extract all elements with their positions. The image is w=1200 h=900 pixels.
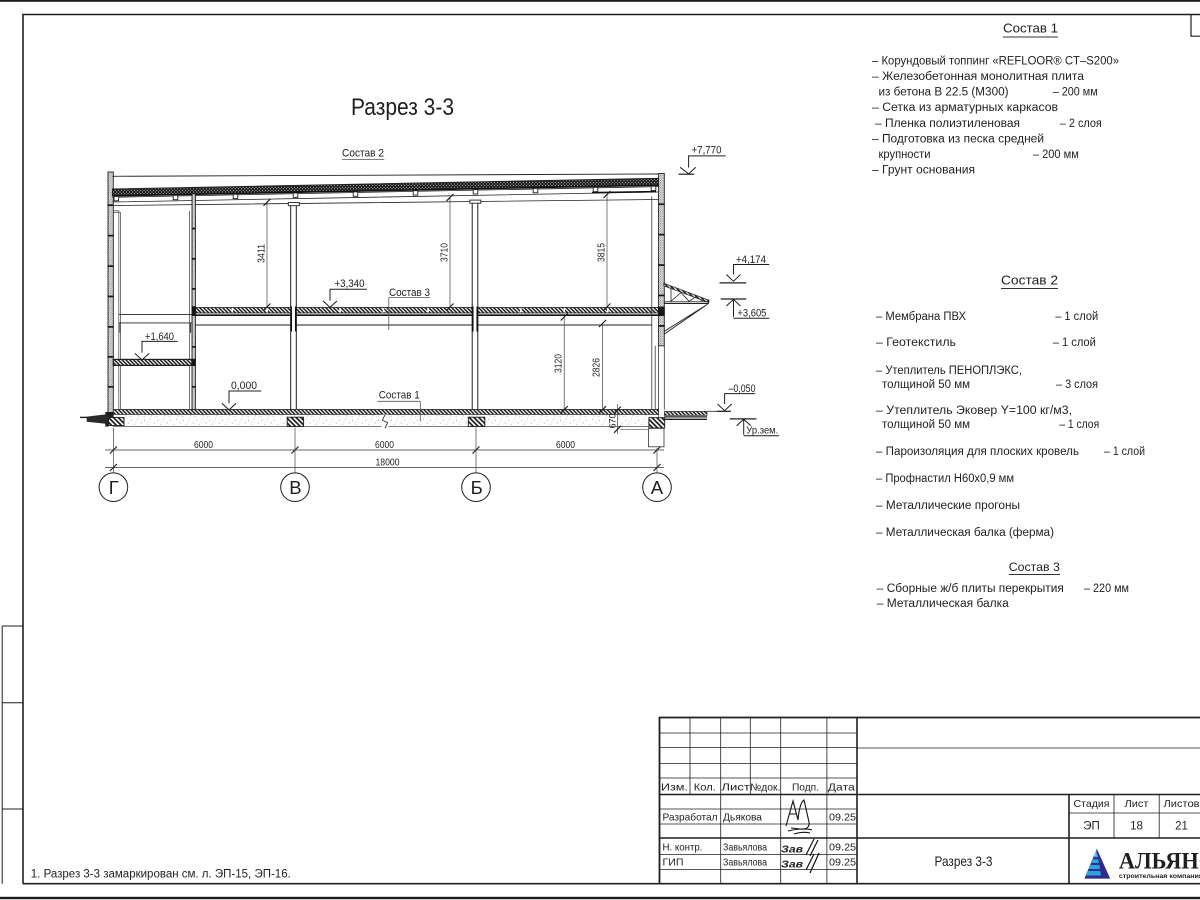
svg-text:Дьякова: Дьякова [723, 813, 762, 824]
svg-text:Н. контр.: Н. контр. [663, 843, 703, 854]
svg-text:– Подготовка из песка средней: – Подготовка из песка средней [872, 133, 1044, 145]
svg-text:– 1 слоя: – 1 слоя [1059, 419, 1099, 431]
svg-text:ЭП: ЭП [1083, 821, 1100, 833]
svg-text:В: В [289, 477, 301, 498]
svg-text:+7,770: +7,770 [692, 145, 722, 157]
svg-text:Подп.: Подп. [792, 782, 819, 793]
svg-text:А: А [651, 477, 664, 498]
svg-text:6000: 6000 [556, 440, 575, 451]
svg-text:Изм.: Изм. [661, 782, 688, 793]
svg-text:Стадия: Стадия [1074, 799, 1110, 810]
svg-text:6000: 6000 [194, 440, 213, 451]
svg-text:09.25: 09.25 [829, 813, 856, 824]
svg-text:ГИП: ГИП [663, 858, 684, 869]
svg-text:Разрез 3-3: Разрез 3-3 [935, 853, 993, 869]
svg-text:6000: 6000 [375, 440, 394, 451]
svg-text:Состав 1: Состав 1 [379, 389, 420, 401]
svg-text:2826: 2826 [592, 358, 603, 377]
svg-text:– 1 слой: – 1 слой [1055, 311, 1098, 323]
svg-text:Б: Б [471, 477, 483, 498]
svg-text:09.25: 09.25 [829, 843, 856, 854]
svg-text:– 3 слоя: – 3 слоя [1056, 379, 1098, 391]
svg-text:– 1 слой: – 1 слой [1053, 337, 1096, 349]
svg-text:– Пленка полиэтиленовая: – Пленка полиэтиленовая [875, 118, 1020, 130]
svg-text:АЛЬЯНС: АЛЬЯНС [1119, 849, 1200, 875]
svg-text:Состав 1: Состав 1 [1003, 22, 1058, 36]
svg-text:– Железобетонная монолитная п: – Железобетонная монолитная плита [872, 71, 1085, 83]
svg-text:– Металлическая балка: – Металлическая балка [877, 598, 1010, 610]
svg-text:Зав: Зав [781, 844, 804, 856]
svg-text:– 220 мм: – 220 мм [1084, 583, 1129, 595]
svg-text:Завьялова: Завьялова [723, 843, 767, 854]
svg-text:– 200 мм: – 200 мм [1033, 149, 1079, 161]
svg-text:+3,340: +3,340 [335, 278, 365, 290]
svg-text:Завьялова: Завьялова [723, 858, 767, 869]
svg-text:– Сетка из арматурных каркасов: – Сетка из арматурных каркасов [872, 102, 1058, 114]
svg-text:толщиной 50 мм: толщиной 50 мм [882, 379, 970, 391]
svg-text:+3,605: +3,605 [737, 308, 766, 320]
svg-text:3120: 3120 [554, 354, 565, 373]
svg-text:21: 21 [1175, 821, 1188, 833]
svg-text:Состав 2: Состав 2 [342, 148, 384, 160]
svg-text:– 2 слоя: – 2 слоя [1060, 118, 1102, 130]
svg-text:– Грунт основания: – Грунт основания [872, 165, 975, 177]
svg-text:Зав: Зав [781, 859, 804, 871]
svg-text:крупности: крупности [879, 149, 931, 161]
svg-text:– Утеплитель Эковер Y=100 кг/м: – Утеплитель Эковер Y=100 кг/м3, [876, 405, 1072, 417]
svg-text:№док.: №док. [750, 782, 780, 793]
svg-text:– 200 мм: – 200 мм [1053, 87, 1098, 99]
svg-text:– Металлические прогоны: – Металлические прогоны [876, 500, 1020, 512]
svg-text:– Мембрана ПВХ: – Мембрана ПВХ [876, 311, 966, 323]
svg-text:– Геотекстиль: – Геотекстиль [876, 337, 956, 349]
svg-text:Дата: Дата [828, 782, 855, 793]
svg-text:0,000: 0,000 [231, 380, 257, 392]
svg-text:Лист: Лист [1125, 799, 1149, 810]
svg-text:1. Разрез 3-3 замаркирован см.: 1. Разрез 3-3 замаркирован см. л. ЭП-15,… [31, 869, 291, 881]
svg-text:– 1 слой: – 1 слой [1104, 446, 1145, 458]
svg-text:Ур.зем.: Ур.зем. [746, 424, 778, 436]
svg-text:– Пароизоляция для плоских кро: – Пароизоляция для плоских кровель [876, 446, 1079, 458]
svg-text:18: 18 [1130, 821, 1143, 833]
svg-text:строительная компания: строительная компания [1119, 873, 1200, 880]
svg-text:Состав 2: Состав 2 [1001, 274, 1058, 288]
svg-text:Г: Г [109, 477, 119, 498]
svg-text:3815: 3815 [597, 243, 608, 262]
svg-text:Лист: Лист [721, 782, 750, 793]
svg-text:Листов: Листов [1164, 799, 1200, 810]
svg-text:Состав 3: Состав 3 [1009, 560, 1060, 574]
svg-text:Разрез 3-3: Разрез 3-3 [351, 94, 454, 121]
svg-text:3710: 3710 [440, 243, 451, 262]
svg-text:– Корундовый топпинг «REFLOOR®: – Корундовый топпинг «REFLOOR® CT–S200» [872, 56, 1119, 68]
svg-text:09.25: 09.25 [829, 858, 856, 869]
svg-text:670: 670 [608, 414, 619, 429]
svg-text:Кол.: Кол. [694, 782, 716, 793]
svg-text:Разработал: Разработал [663, 812, 718, 824]
svg-text:18000: 18000 [376, 457, 400, 468]
svg-text:из бетона В 22.5 (М300): из бетона В 22.5 (М300) [879, 87, 1009, 99]
svg-text:– Утеплитель ПЕНОПЛЭКС,: – Утеплитель ПЕНОПЛЭКС, [876, 365, 1022, 377]
svg-text:– Металлическая балка (ферма): – Металлическая балка (ферма) [876, 527, 1054, 539]
svg-text:3411: 3411 [257, 244, 268, 263]
svg-text:толщиной 50 мм: толщиной 50 мм [882, 419, 970, 431]
svg-text:– Профнастил Н60х0,9 мм: – Профнастил Н60х0,9 мм [876, 473, 1014, 485]
svg-text:– Сборные ж/б плиты перекрытия: – Сборные ж/б плиты перекрытия [877, 583, 1064, 595]
